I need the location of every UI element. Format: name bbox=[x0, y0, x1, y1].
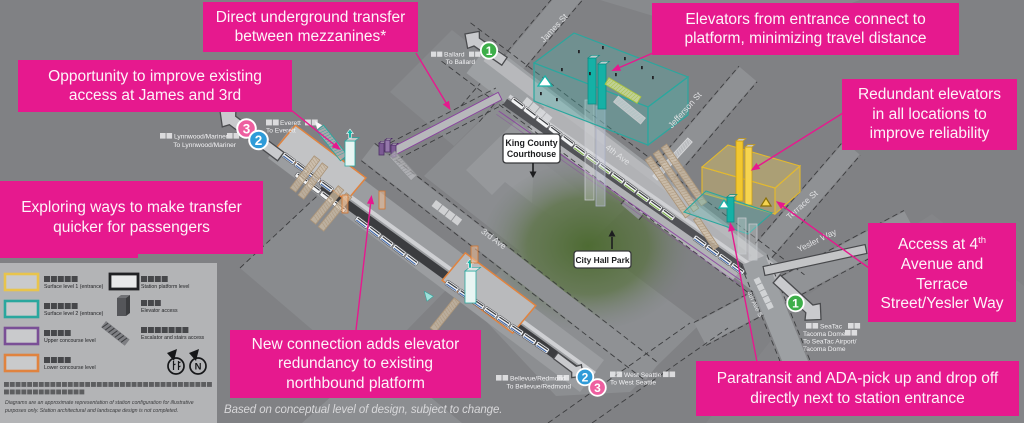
svg-text:SeaTac: SeaTac bbox=[820, 324, 843, 331]
svg-text:Surface level 2 (entrance): Surface level 2 (entrance) bbox=[44, 311, 104, 317]
svg-text:purposes only. Station archit: purposes only. Station architectural and… bbox=[4, 408, 178, 414]
svg-text:Surface level 1 (entrance): Surface level 1 (entrance) bbox=[44, 284, 104, 290]
svg-text:Ballard: Ballard bbox=[444, 52, 465, 59]
svg-text:1: 1 bbox=[486, 44, 493, 58]
svg-text:King County: King County bbox=[505, 138, 557, 148]
svg-text:West Seattle: West Seattle bbox=[624, 372, 662, 379]
svg-text:3: 3 bbox=[594, 381, 601, 395]
svg-text:City Hall Park: City Hall Park bbox=[576, 255, 630, 265]
svg-text:Lynnwood/Mariner: Lynnwood/Mariner bbox=[174, 134, 229, 141]
svg-text:Station platform level: Station platform level bbox=[141, 284, 189, 290]
svg-text:Upper concourse level: Upper concourse level bbox=[44, 338, 96, 344]
svg-text:Courthouse: Courthouse bbox=[507, 149, 556, 159]
svg-text:Diagrams are an approximate re: Diagrams are an approximate representati… bbox=[5, 400, 194, 406]
svg-text:To SeaTac Airport/: To SeaTac Airport/ bbox=[803, 339, 857, 346]
svg-text:To West Seattle: To West Seattle bbox=[610, 380, 656, 387]
svg-text:To Bellevue/Redmond: To Bellevue/Redmond bbox=[506, 384, 571, 391]
svg-text:3: 3 bbox=[243, 121, 251, 136]
svg-text:N: N bbox=[195, 362, 202, 373]
svg-text:Tacoma Dome: Tacoma Dome bbox=[803, 331, 846, 338]
svg-text:Everett: Everett bbox=[280, 120, 301, 127]
svg-text:2: 2 bbox=[582, 370, 589, 384]
svg-text:To Everett: To Everett bbox=[266, 128, 296, 135]
svg-text:To Ballard: To Ballard bbox=[446, 59, 476, 66]
svg-text:2: 2 bbox=[255, 133, 263, 148]
svg-text:Elevator access: Elevator access bbox=[141, 308, 178, 314]
svg-text:Lower concourse level: Lower concourse level bbox=[44, 365, 96, 371]
svg-text:To Lynnwood/Mariner: To Lynnwood/Mariner bbox=[173, 142, 237, 149]
svg-text:1: 1 bbox=[792, 296, 799, 310]
svg-text:Escalator and stairs access: Escalator and stairs access bbox=[141, 335, 205, 341]
svg-text:Tacoma Dome: Tacoma Dome bbox=[803, 346, 846, 353]
